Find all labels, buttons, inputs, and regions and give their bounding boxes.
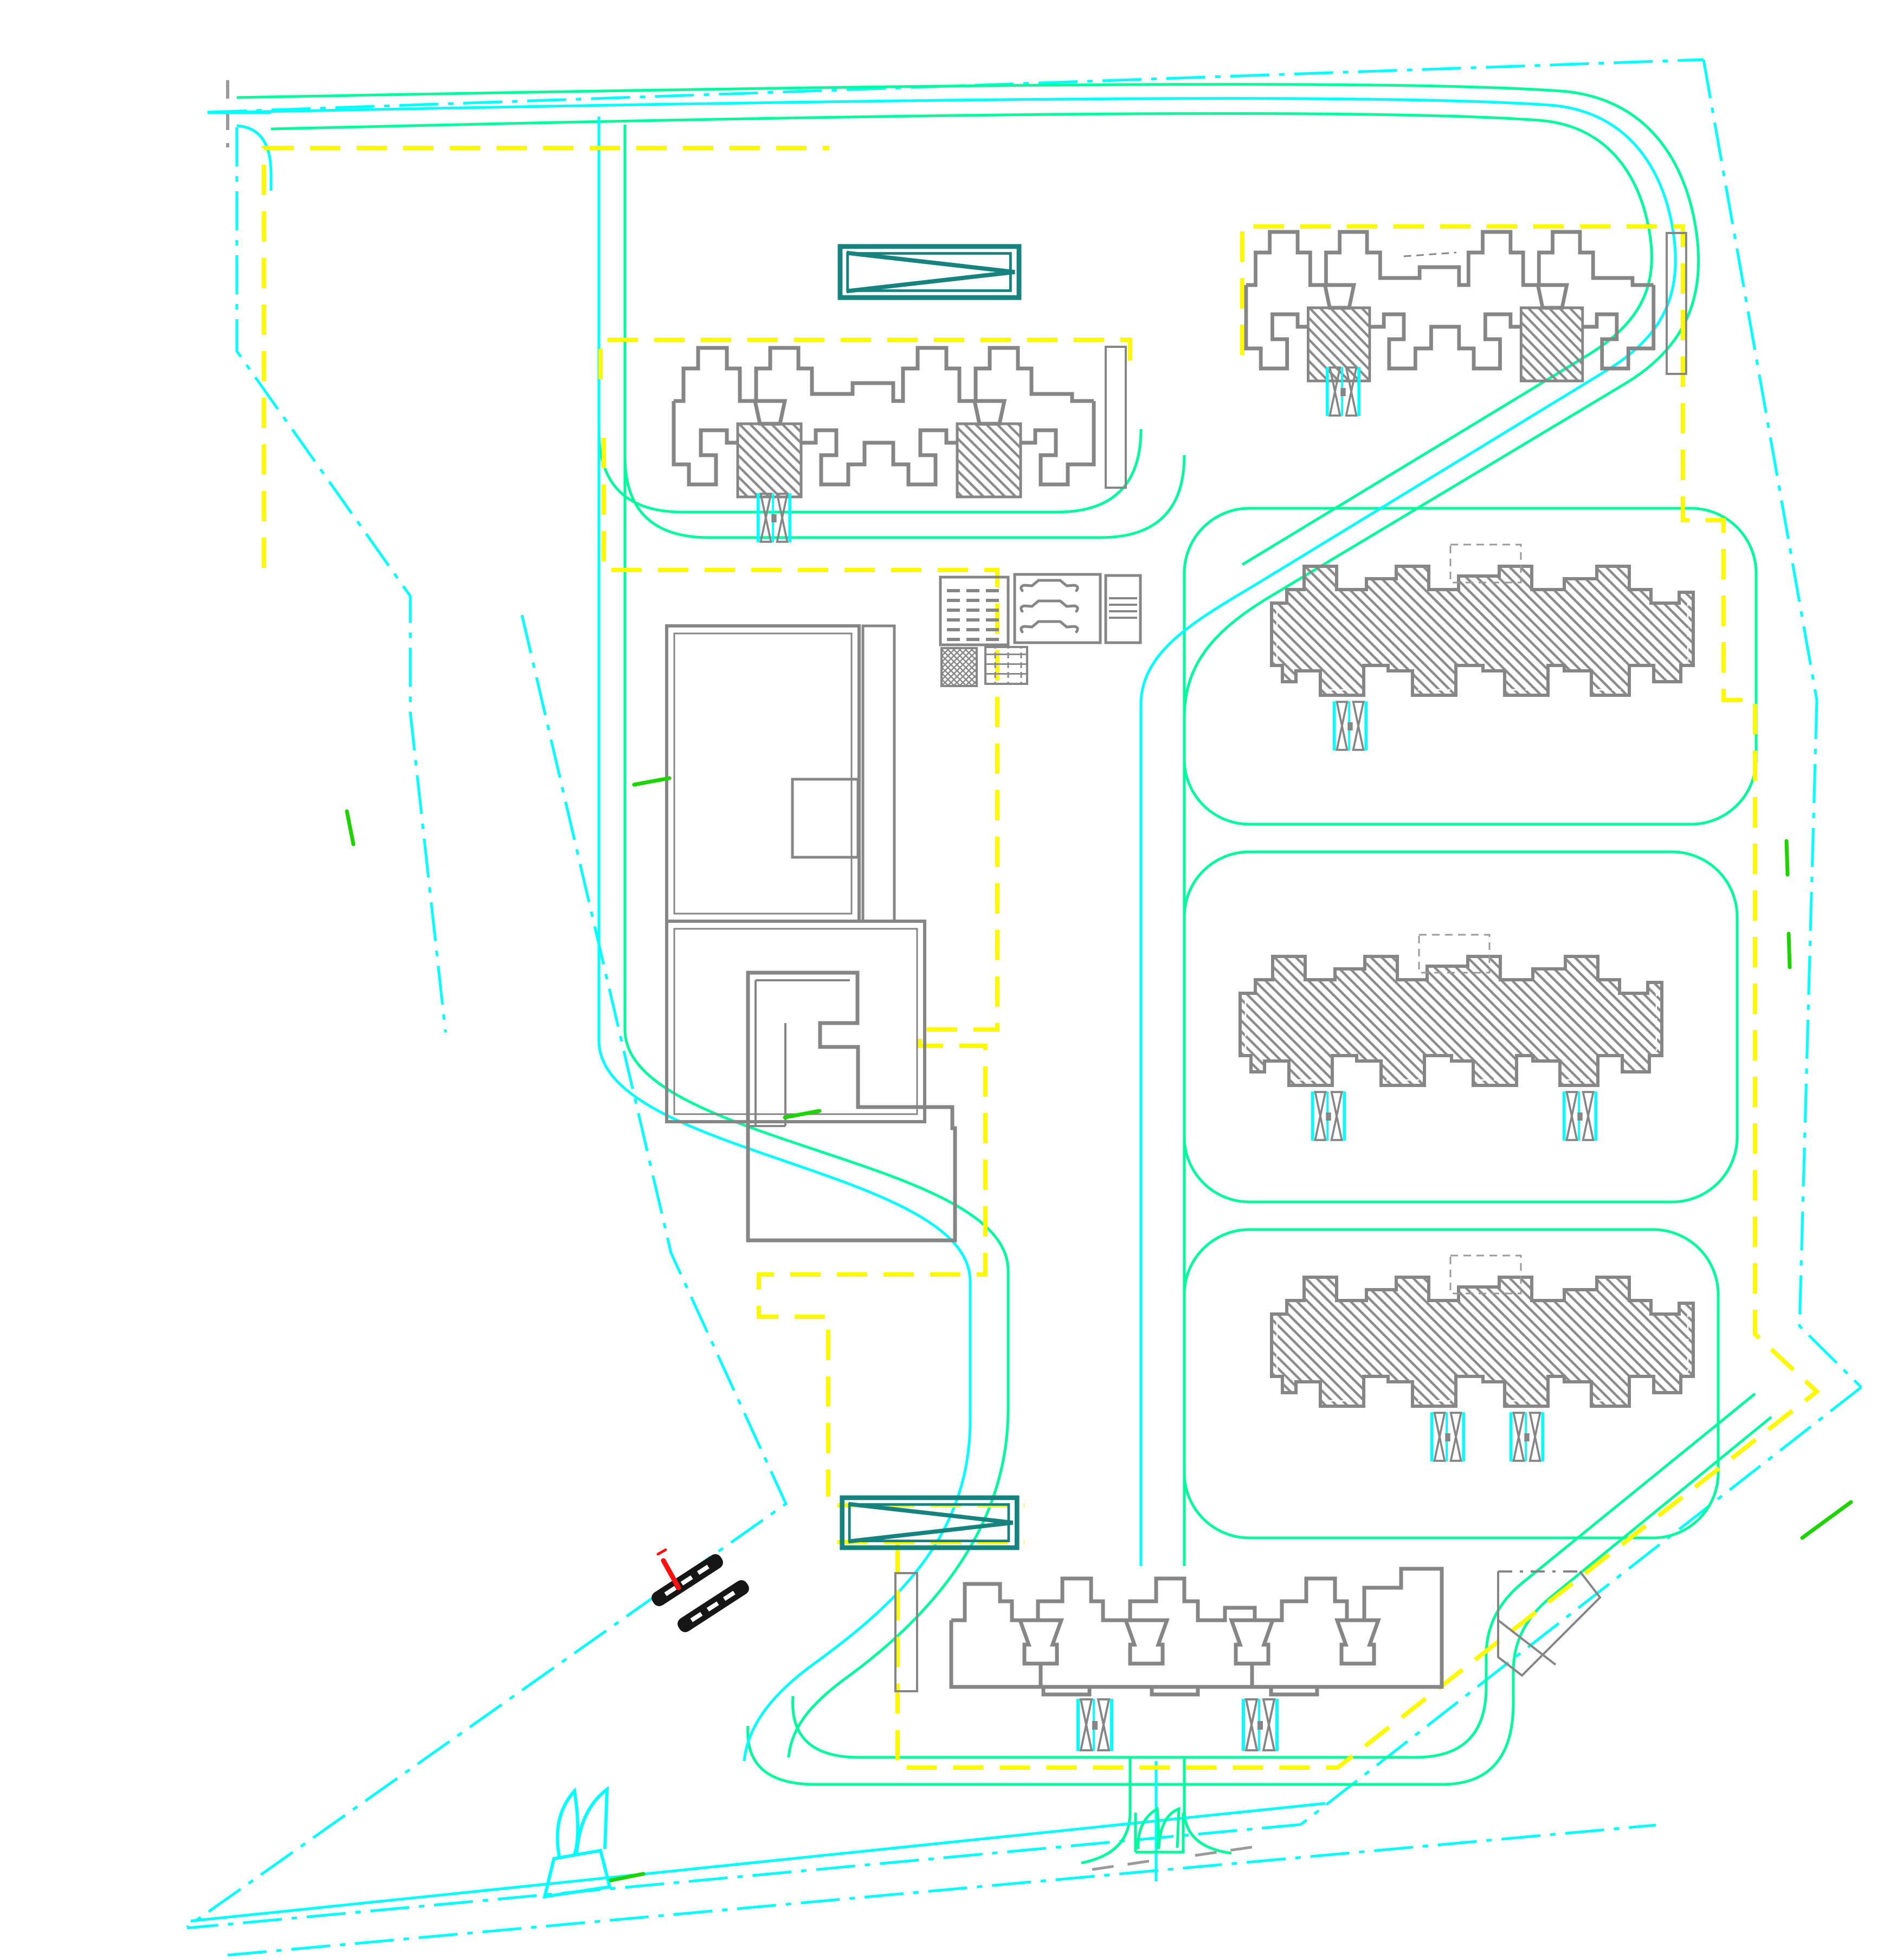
setback-kindergarten	[604, 438, 997, 1497]
entrance-b2	[1327, 367, 1359, 416]
north-marker	[658, 1550, 679, 1588]
boundary-south	[187, 1825, 1301, 1928]
k-lower-outer	[667, 921, 925, 1122]
boundary-south-2	[228, 1825, 1656, 1955]
entrance-r1	[1334, 701, 1366, 751]
bb-funnel-1	[1020, 1620, 1061, 1687]
ramp-south	[842, 1498, 1017, 1548]
b1-cores	[738, 424, 1021, 497]
swatch-herringbone	[941, 648, 977, 686]
entrance-bb-east	[1243, 1699, 1277, 1751]
road-top-left-stub	[208, 113, 271, 191]
r1-footprint	[1272, 566, 1693, 695]
swatch-grid	[985, 647, 1027, 684]
r3-footprint	[1272, 1277, 1693, 1406]
b1-core-2	[957, 424, 1021, 497]
tree-petal-left	[558, 1791, 578, 1857]
b2-core-2	[1521, 308, 1582, 381]
tree-base	[545, 1851, 610, 1897]
boundary-east	[1799, 700, 1861, 1387]
panel-benches-squiggles	[1021, 580, 1078, 632]
r2-footprint	[1240, 956, 1662, 1085]
boundary-southeast	[1301, 1387, 1861, 1825]
b2-roof-dashes	[1404, 253, 1456, 256]
building-r2	[1240, 935, 1662, 1085]
b1-funnel-2	[975, 401, 1004, 424]
b2-funnel-1	[1325, 285, 1354, 308]
building-r3	[1272, 1256, 1693, 1406]
b2-top-outline	[1246, 232, 1654, 285]
panel-stairs-frame	[1106, 575, 1140, 643]
k-lower-inner	[674, 929, 917, 1114]
entrance-bb-west	[1078, 1699, 1112, 1751]
site-plan-canvas	[0, 0, 1877, 1960]
south-entrance-flare-right	[1184, 1757, 1231, 1853]
b1-funnel-1	[755, 401, 785, 424]
boundary-west-outer	[237, 127, 446, 1032]
bb-funnel-3	[1231, 1620, 1273, 1687]
entrance-r2-east	[1564, 1091, 1596, 1141]
b1-end-bar	[1106, 347, 1126, 488]
road-b1-south-lower	[625, 455, 1184, 538]
k-small-square	[792, 779, 858, 857]
tree-petal-right	[577, 1789, 607, 1853]
building-b1	[674, 347, 1126, 497]
b2-funnel-2	[1538, 285, 1566, 308]
boundary-west-inner	[187, 615, 786, 1927]
bb-funnel-4	[1337, 1620, 1378, 1664]
b1-top-outline	[674, 348, 1094, 401]
entrance-r3-east	[1511, 1412, 1543, 1461]
entrance-leaf-petals	[1138, 1809, 1179, 1849]
entrance-r3-west	[1432, 1412, 1463, 1461]
building-bottom	[895, 1569, 1442, 1694]
boundary-northeast	[1704, 60, 1817, 700]
tree-south-entrance	[1136, 1809, 1183, 1852]
amenity-panels	[940, 574, 1140, 686]
entrance-b1	[758, 493, 790, 542]
b1-core-1	[738, 424, 801, 497]
building-kindergarten	[667, 626, 925, 1122]
building-b2	[1246, 232, 1686, 381]
setback-northwest	[264, 148, 829, 568]
stepped-inner-lines	[748, 980, 850, 1126]
k-upper-outer	[667, 626, 859, 921]
k-tall-bar	[863, 626, 894, 921]
entrance-r2-west	[1313, 1091, 1344, 1141]
k-upper-inner	[674, 633, 852, 914]
south-entrance-gray-dashes	[1092, 1845, 1266, 1870]
b2-cores	[1308, 308, 1582, 381]
road-west-cyan	[599, 117, 970, 1761]
building-r1	[1272, 545, 1693, 695]
bb-funnel-2	[1126, 1620, 1167, 1664]
setback-b1	[601, 340, 1130, 379]
south-entrance-flare-left	[1081, 1757, 1130, 1863]
panel-louvers-bars	[947, 591, 1002, 639]
panel-stairs-treads	[1109, 598, 1137, 618]
ramp-north	[840, 247, 1019, 297]
